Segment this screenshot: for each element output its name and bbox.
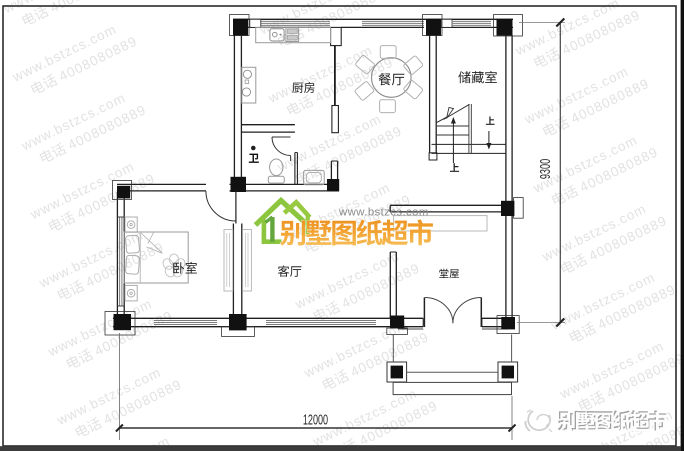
svg-text:www.bstzcs.com: www.bstzcs.com	[338, 207, 429, 219]
svg-text:12000: 12000	[303, 411, 328, 428]
svg-text:9300: 9300	[537, 159, 554, 179]
